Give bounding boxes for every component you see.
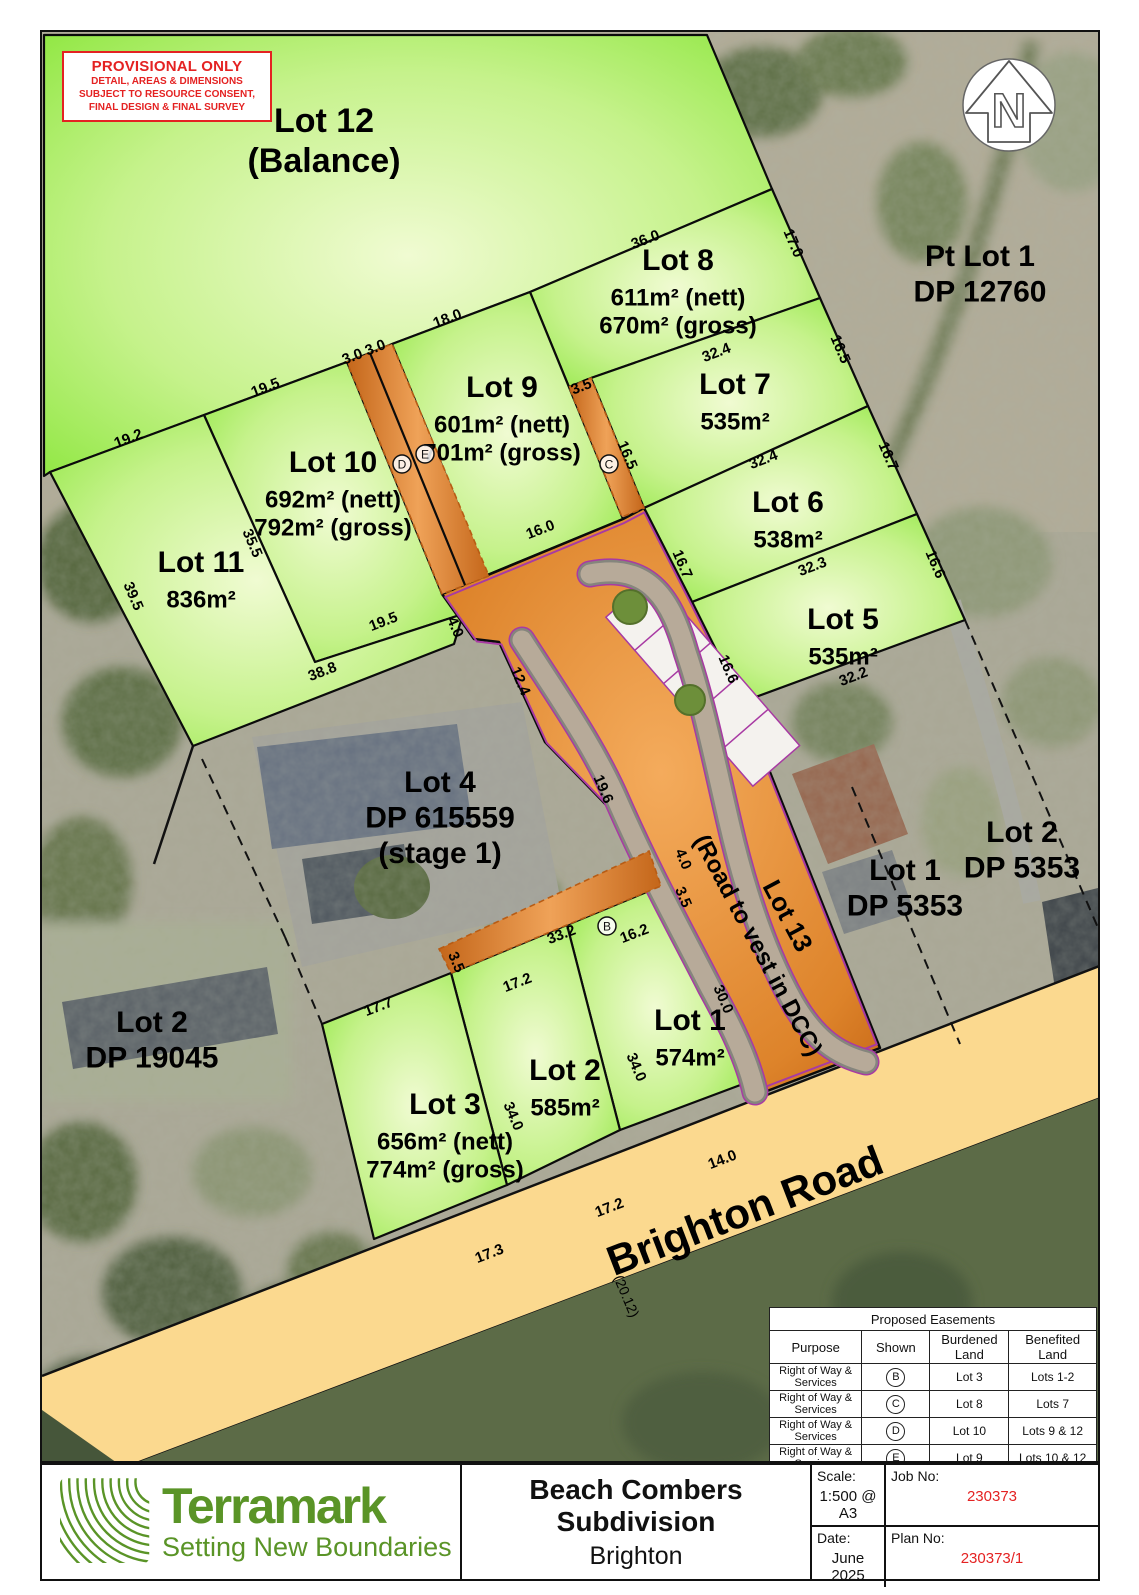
plan-title: Beach Combers Subdivision [462,1474,810,1538]
easements-col-header: Purpose [770,1331,862,1364]
plan-map-area: 36.017.018.03.03.019.519.23.532.416.516.… [40,30,1100,1463]
lot-1-label: Lot 1 [654,1004,726,1037]
easement-shown-letter: B [886,1368,905,1387]
easement-cell: Right of Way & Services [770,1418,862,1445]
lot-1-dp-5353-label: Lot 1 [869,854,941,887]
easements-table: Proposed Easements PurposeShownBurdened … [769,1307,1097,1463]
lot-2-dp-5353-label: Lot 2 [986,816,1058,849]
terramark-logo: Terramark Setting New Boundaries [42,1465,462,1579]
lot-2-dp-19045-label: Lot 2 [116,1006,188,1039]
easement-cell: Lot 9 [930,1445,1009,1464]
date-label: Date: [817,1530,879,1546]
lot-4-label: DP 615559 [365,801,515,834]
job-cell: Job No: 230373 [886,1465,1098,1527]
easements-col-header: Benefited Land [1009,1331,1097,1364]
lot-4-label: (stage 1) [378,837,501,870]
easement-cell: Right of Way & Services [770,1364,862,1391]
easement-mark-letter: D [398,458,407,472]
lot-12-label: Lot 12 [274,102,374,140]
job-value: 230373 [891,1488,1093,1505]
easement-cell: Lots 1-2 [1009,1364,1097,1391]
easement-cell: Lots 9 & 12 [1009,1418,1097,1445]
easement-cell: D [862,1418,930,1445]
scale-cell: Scale: 1:500 @ A3 [812,1465,886,1527]
plan-no-value: 230373/1 [891,1550,1093,1567]
lot-4-label: Lot 4 [404,766,476,799]
terramark-wordmark: Terramark [162,1482,452,1530]
easement-row: Right of Way & ServicesBLot 3Lots 1-2 [770,1364,1097,1391]
pt-lot-1-label: Pt Lot 1 [925,240,1035,273]
lot-7-label: 535m² [700,408,769,435]
easement-cell: Lot 3 [930,1364,1009,1391]
easement-mark-letter: B [603,920,611,934]
lot-10-label: Lot 10 [289,446,377,479]
north-arrow-icon: N [963,59,1055,151]
lot-6-label: 538m² [753,526,822,553]
lot-2-label: 585m² [530,1094,599,1121]
lot-12-label: (Balance) [247,142,400,180]
lot-10-label: 692m² (nett) [265,486,401,513]
lot-9-label: 601m² (nett) [434,411,570,438]
plan-no-cell: Plan No: 230373/1 [886,1527,1098,1587]
lot-8-label: 670m² (gross) [599,313,756,340]
job-label: Job No: [891,1468,1093,1484]
easement-cell: Lot 10 [930,1418,1009,1445]
easement-mark-letter: C [605,458,614,472]
provisional-warning-box: PROVISIONAL ONLY DETAIL, AREAS & DIMENSI… [62,51,272,122]
easement-row: Right of Way & ServicesELot 9Lots 10 & 1… [770,1445,1097,1464]
plan-no-label: Plan No: [891,1530,1093,1546]
easement-shown-letter: D [886,1422,905,1441]
lot-5-label: 535m² [808,643,877,670]
easement-cell: C [862,1391,930,1418]
lot-3-label: 774m² (gross) [366,1157,523,1184]
date-cell: Date: June 2025 [812,1527,886,1587]
terramark-tagline: Setting New Boundaries [162,1532,452,1563]
lot-5-label: Lot 5 [807,603,879,636]
easement-shown-letter: E [886,1449,905,1464]
plan-drawing: 36.017.018.03.03.019.519.23.532.416.516.… [42,32,1100,1463]
easement-cell: B [862,1364,930,1391]
provisional-line: SUBJECT TO RESOURCE CONSENT, [68,88,266,101]
easement-cell: E [862,1445,930,1464]
scale-label: Scale: [817,1468,879,1484]
lot-1-label: 574m² [655,1044,724,1071]
easement-cell: Lots 10 & 12 [1009,1445,1097,1464]
pt-lot-1-label: DP 12760 [914,275,1047,308]
terramark-logo-mark [60,1477,152,1567]
lot-7-label: Lot 7 [699,368,771,401]
street-tree [675,685,705,715]
north-letter: N [992,85,1027,138]
lot-10-label: 792m² (gross) [254,515,411,542]
lot-11-label: Lot 11 [158,546,245,579]
lot-8-label: 611m² (nett) [611,284,746,311]
lot-2-label: Lot 2 [529,1054,601,1087]
easement-mark-letter: E [421,448,429,462]
scale-value: 1:500 @ A3 [817,1488,879,1522]
easement-shown-letter: C [886,1395,905,1414]
easement-cell: Right of Way & Services [770,1391,862,1418]
plan-meta-cells: Scale: 1:500 @ A3 Job No: 230373 Date: J… [812,1465,1098,1579]
title-block: Terramark Setting New Boundaries Beach C… [40,1463,1100,1581]
lot-8-label: Lot 8 [642,244,714,277]
easement-row: Right of Way & ServicesDLot 10Lots 9 & 1… [770,1418,1097,1445]
plan-title-cell: Beach Combers Subdivision Brighton [462,1465,812,1579]
provisional-title: PROVISIONAL ONLY [68,58,266,75]
lot-9-label: Lot 9 [466,371,538,404]
lot-2-dp-19045-label: DP 19045 [86,1041,219,1074]
easement-cell: Right of Way & Services [770,1445,862,1464]
provisional-line: DETAIL, AREAS & DIMENSIONS [68,75,266,88]
lot-6-label: Lot 6 [752,486,824,519]
plan-subtitle: Brighton [462,1542,810,1571]
provisional-line: FINAL DESIGN & FINAL SURVEY [68,101,266,114]
easement-row: Right of Way & ServicesCLot 8Lots 7 [770,1391,1097,1418]
street-tree [613,590,647,624]
easements-table-title: Proposed Easements [770,1308,1097,1331]
easements-col-header: Burdened Land [930,1331,1009,1364]
easements-table-header: PurposeShownBurdened LandBenefited Land [770,1331,1097,1364]
lot-2-dp-5353-label: DP 5353 [964,851,1080,884]
easement-cell: Lots 7 [1009,1391,1097,1418]
lot-9-label: 701m² (gross) [423,440,580,467]
easement-cell: Lot 8 [930,1391,1009,1418]
lot-11-label: 836m² [166,586,235,613]
lot-3-label: Lot 3 [409,1088,481,1121]
lot-3-label: 656m² (nett) [377,1128,513,1155]
survey-plan-page: 36.017.018.03.03.019.519.23.532.416.516.… [0,0,1139,1595]
lot-1-dp-5353-label: DP 5353 [847,889,963,922]
date-value: June 2025 [817,1550,879,1584]
easements-col-header: Shown [862,1331,930,1364]
